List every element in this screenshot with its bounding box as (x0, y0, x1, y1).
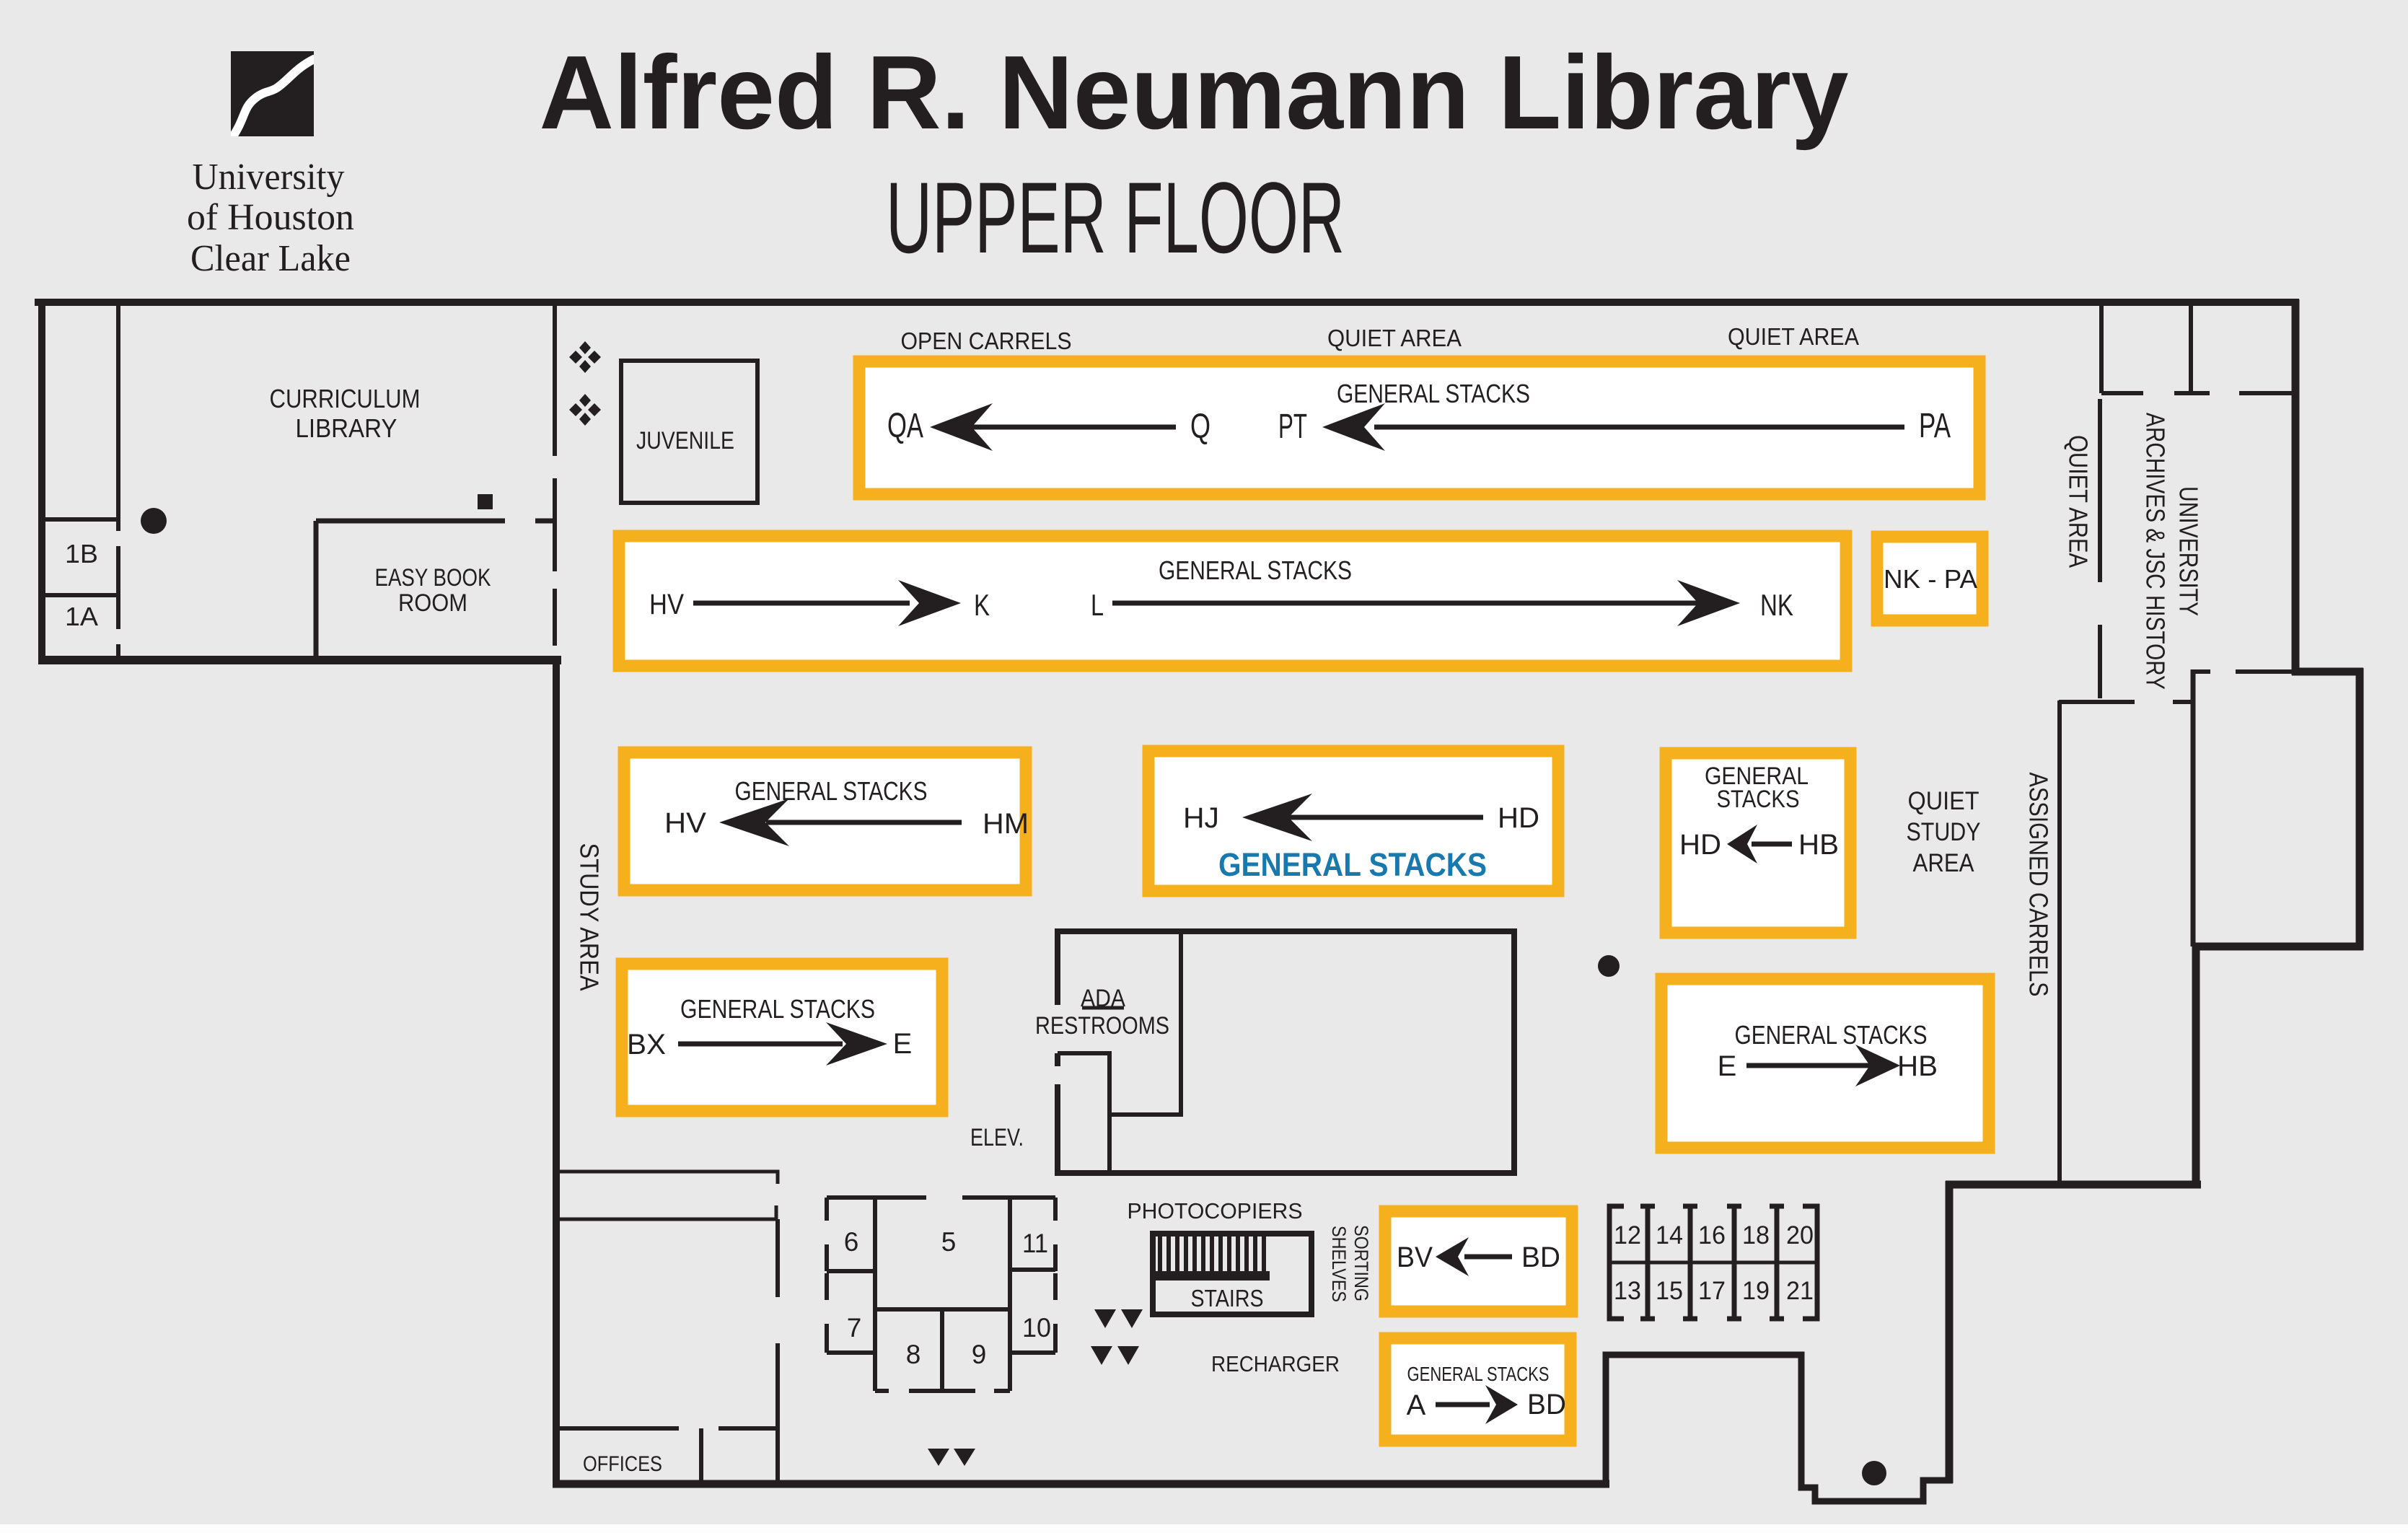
svg-text:PT: PT (1278, 408, 1307, 446)
svg-text:QA: QA (887, 407, 923, 445)
svg-text:STUDY: STUDY (1907, 818, 1981, 846)
svg-text:SHELVES: SHELVES (1328, 1226, 1350, 1302)
svg-text:17: 17 (1698, 1277, 1726, 1305)
svg-text:E: E (893, 1028, 913, 1060)
svg-text:of Houston: of Houston (187, 197, 354, 238)
svg-text:8: 8 (906, 1340, 921, 1369)
svg-text:EASY BOOK: EASY BOOK (375, 564, 491, 592)
svg-text:PA: PA (1919, 407, 1951, 445)
svg-text:STAIRS: STAIRS (1191, 1285, 1264, 1312)
svg-text:11: 11 (1022, 1229, 1048, 1258)
svg-text:Alfred R. Neumann Library: Alfred R. Neumann Library (540, 34, 1849, 151)
svg-text:HV: HV (664, 807, 706, 839)
svg-text:K: K (974, 588, 990, 622)
svg-text:QUIET: QUIET (1908, 787, 1979, 815)
svg-text:HJ: HJ (1183, 802, 1219, 834)
svg-text:1A: 1A (65, 602, 98, 631)
svg-text:PHOTOCOPIERS: PHOTOCOPIERS (1128, 1198, 1303, 1224)
svg-text:UPPER FLOOR: UPPER FLOOR (886, 161, 1345, 274)
svg-text:L: L (1091, 588, 1104, 622)
svg-text:BD: BD (1521, 1242, 1560, 1273)
svg-text:14: 14 (1656, 1221, 1683, 1249)
svg-text:ADA: ADA (1081, 985, 1125, 1012)
svg-text:GENERAL STACKS: GENERAL STACKS (735, 776, 928, 806)
svg-text:ASSIGNED CARRELS: ASSIGNED CARRELS (2024, 773, 2054, 997)
svg-text:ELEV.: ELEV. (970, 1124, 1024, 1151)
svg-text:Clear Lake: Clear Lake (190, 238, 351, 279)
svg-text:10: 10 (1022, 1313, 1051, 1343)
svg-text:A: A (1407, 1389, 1426, 1421)
svg-text:19: 19 (1742, 1277, 1770, 1305)
svg-text:9: 9 (972, 1340, 987, 1369)
svg-text:1B: 1B (65, 539, 98, 568)
svg-text:GENERAL STACKS: GENERAL STACKS (1337, 379, 1530, 408)
svg-text:21: 21 (1786, 1277, 1814, 1305)
svg-text:Q: Q (1190, 408, 1210, 446)
svg-text:GENERAL STACKS: GENERAL STACKS (1735, 1020, 1928, 1050)
svg-text:AREA: AREA (1913, 849, 1975, 877)
svg-text:CURRICULUM: CURRICULUM (270, 384, 421, 413)
svg-text:BV: BV (1397, 1242, 1433, 1273)
svg-text:LIBRARY: LIBRARY (296, 413, 397, 443)
svg-text:OPEN CARRELS: OPEN CARRELS (901, 328, 1072, 354)
svg-text:12: 12 (1614, 1221, 1641, 1249)
svg-text:HD: HD (1679, 829, 1721, 861)
svg-text:GENERAL STACKS: GENERAL STACKS (1218, 846, 1487, 883)
svg-text:15: 15 (1656, 1277, 1683, 1305)
svg-text:5: 5 (941, 1227, 957, 1257)
svg-text:NK: NK (1760, 588, 1793, 622)
svg-text:E: E (1718, 1050, 1737, 1082)
svg-text:GENERAL STACKS: GENERAL STACKS (1159, 555, 1352, 585)
svg-text:JUVENILE: JUVENILE (636, 427, 734, 454)
svg-text:BX: BX (627, 1029, 666, 1060)
svg-text:HM: HM (983, 808, 1029, 840)
svg-text:HV: HV (649, 589, 684, 620)
svg-text:HB: HB (1798, 829, 1839, 861)
svg-text:University: University (193, 157, 345, 198)
svg-text:SORTING: SORTING (1350, 1225, 1372, 1301)
svg-text:STUDY AREA: STUDY AREA (575, 843, 605, 991)
svg-text:HB: HB (1897, 1050, 1938, 1082)
svg-text:7: 7 (847, 1313, 862, 1343)
svg-text:ARCHIVES & JSC HISTORY: ARCHIVES & JSC HISTORY (2141, 413, 2171, 690)
svg-text:18: 18 (1742, 1221, 1770, 1249)
svg-text:ROOM: ROOM (398, 589, 467, 617)
svg-text:6: 6 (844, 1227, 859, 1257)
svg-text:QUIET AREA: QUIET AREA (2064, 435, 2093, 568)
svg-text:NK - PA: NK - PA (1884, 564, 1977, 594)
svg-text:STACKS: STACKS (1717, 786, 1800, 813)
svg-text:20: 20 (1786, 1221, 1814, 1249)
svg-text:QUIET AREA: QUIET AREA (1728, 323, 1859, 350)
svg-text:HD: HD (1498, 802, 1539, 834)
svg-text:OFFICES: OFFICES (583, 1452, 662, 1476)
svg-text:BD: BD (1527, 1389, 1566, 1420)
svg-text:QUIET AREA: QUIET AREA (1327, 325, 1462, 351)
svg-text:16: 16 (1698, 1221, 1726, 1249)
svg-text:RECHARGER: RECHARGER (1211, 1351, 1340, 1376)
svg-text:GENERAL STACKS: GENERAL STACKS (1407, 1363, 1550, 1385)
svg-text:13: 13 (1614, 1277, 1641, 1305)
svg-text:UNIVERSITY: UNIVERSITY (2174, 486, 2204, 616)
svg-text:RESTROOMS: RESTROOMS (1035, 1012, 1169, 1040)
svg-text:GENERAL STACKS: GENERAL STACKS (680, 994, 875, 1024)
